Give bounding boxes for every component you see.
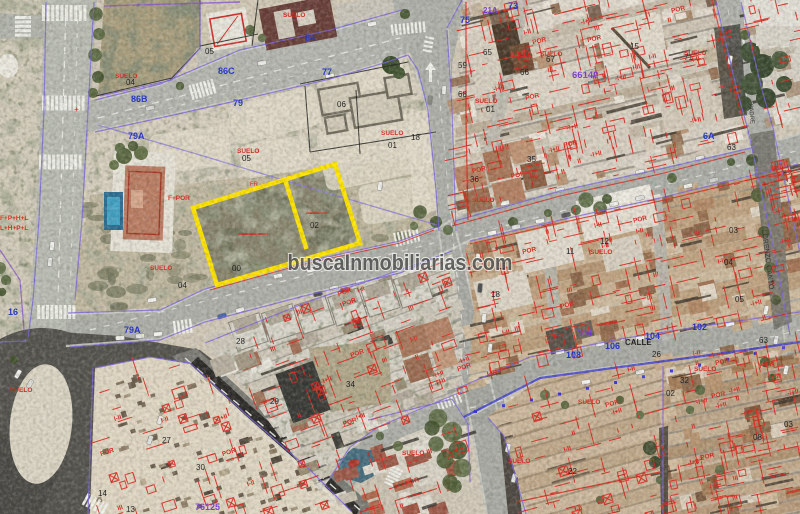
svg-text:buscaInmobiliarias.com: buscaInmobiliarias.com	[288, 250, 513, 275]
